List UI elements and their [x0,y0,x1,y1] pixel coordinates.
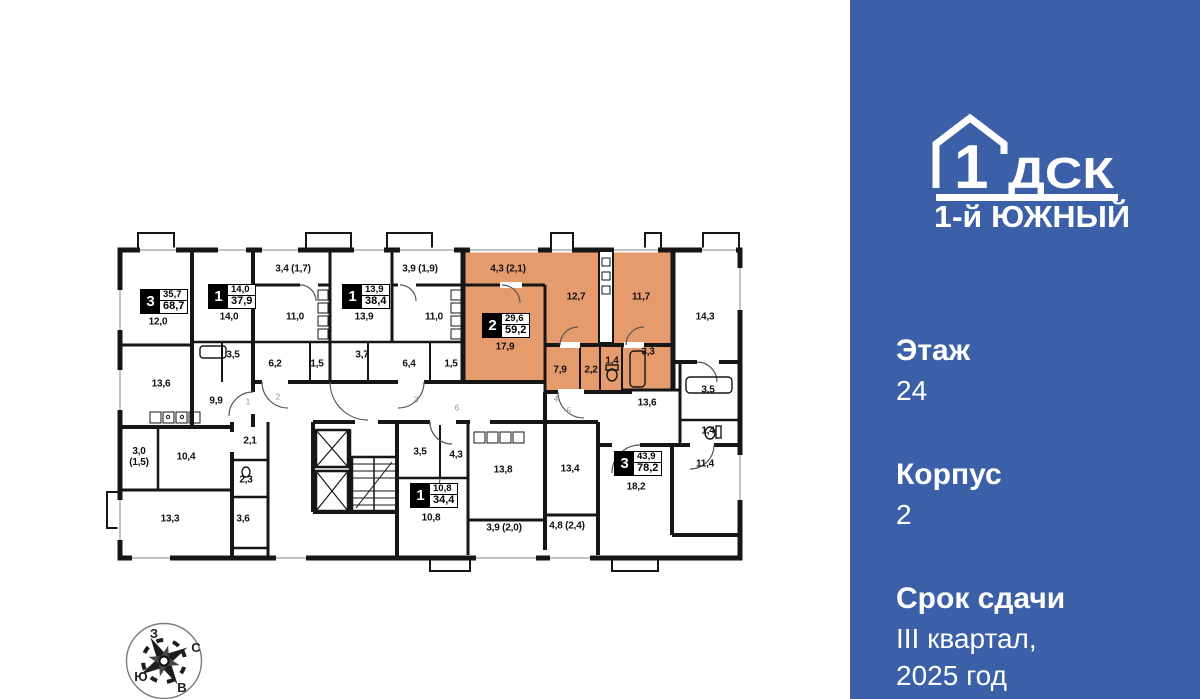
elevator-shafts [316,430,348,511]
compass-letter-north: С [191,640,201,655]
staircase [352,457,397,511]
room-area-label: 1,5 [444,359,457,370]
room-area-label: 10,8 [422,513,441,524]
room-area-label: 3,0 (1,5) [129,446,149,468]
room-area-label: 2,3 [239,475,252,486]
room-area-label: 9,9 [209,396,222,407]
room-area-label: 1,4 [605,356,618,367]
room-area-label: 3,7 [355,350,368,361]
room-area-label: 6,2 [268,359,281,370]
room-area-label: 2,2 [584,365,597,376]
room-area-label: 3,9 (2,0) [486,523,521,534]
unit-number: 2 [276,393,280,402]
rooms-count: 1 [411,484,430,507]
logo-letters: ДСК [1008,149,1114,198]
floor-plan-drawing [0,0,850,699]
unit-number: 1 [246,398,250,407]
room-area-label: 13,3 [161,514,180,525]
room-area-label: 4,3 (2,1) [490,264,525,275]
info-panel: 1 ДСК 1-й ЮЖНЫЙ Этаж 24 Корпус 2 Срок сд… [850,0,1200,699]
total-area: 34,4 [430,495,457,506]
building-value: 2 [896,496,1002,533]
room-area-label: 1,4 [701,426,714,437]
rooms-count: 1 [343,285,362,308]
room-area-label: 3,9 (1,9) [402,264,437,275]
room-area-label: 17,9 [496,342,515,353]
unit-number: 5 [567,407,571,416]
room-area-label: 3,5 [226,350,239,361]
room-area-label: 3,4 (1,7) [275,264,310,275]
logo-number: 1 [954,133,988,202]
apartment-badge-1k[interactable]: 114,037,9 [208,284,256,309]
room-area-label: 13,6 [638,398,657,409]
deadline-value: III квартал, 2025 год [896,620,1065,694]
room-area-label: 18,2 [627,482,646,493]
deadline-label: Срок сдачи [896,582,1065,616]
floor-field: Этаж 24 [896,334,970,409]
room-area-label: 6,4 [402,359,415,370]
floor-value: 24 [896,372,970,409]
room-area-label: 3,5 [701,385,714,396]
compass-letter-west: З [150,626,158,641]
unit-number: 4 [554,395,558,404]
room-area-label: 10,4 [177,452,196,463]
apartment-badge-3k[interactable]: 343,978,2 [614,451,662,476]
apartment-badge-1k[interactable]: 113,938,4 [342,284,390,309]
total-area: 37,9 [228,296,255,307]
room-area-label: 4,3 [449,450,462,461]
room-area-label: 7,9 [553,365,566,376]
room-area-label: 11,7 [632,292,650,303]
room-area-label: 13,4 [561,464,580,475]
room-area-label: 13,6 [152,379,171,390]
deadline-field: Срок сдачи III квартал, 2025 год [896,582,1065,694]
room-area-label: 3,6 [236,514,249,525]
apartment-badge-2k-selected[interactable]: 229,659,2 [482,313,530,338]
apartment-badge-3k[interactable]: 335,768,7 [140,289,188,314]
unit-number: 3 [414,396,418,405]
floor-label: Этаж [896,334,970,368]
room-area-label: 11,0 [286,312,304,323]
unit-number: 6 [455,404,459,413]
total-area: 59,2 [502,325,529,336]
vent-shaft [599,251,613,343]
room-area-label: 13,8 [494,465,513,476]
room-area-label: 14,3 [696,312,715,323]
room-area-label: 14,0 [220,312,239,323]
room-area-label: 11,4 [696,459,714,470]
compass-letter-east: В [177,680,186,695]
developer-logo: 1 ДСК 1-й ЮЖНЫЙ [928,110,1140,232]
rooms-count: 2 [483,314,502,337]
total-area: 68,7 [160,301,187,312]
floor-plan: 12,013,69,914,03,4 (1,7)11,03,56,21,513,… [0,0,850,699]
apartment-badge-1k[interactable]: 110,834,4 [410,483,458,508]
building-label: Корпус [896,458,1002,492]
compass-letter-south: Ю [134,669,147,684]
room-area-label: 2,1 [243,436,256,447]
room-area-label: 3,3 [641,347,654,358]
project-name: 1-й ЮЖНЫЙ [934,198,1130,232]
rooms-count: 3 [615,452,634,475]
total-area: 78,2 [634,463,661,474]
rooms-count: 1 [209,285,228,308]
room-area-label: 12,0 [149,317,168,328]
rooms-count: 3 [141,290,160,313]
room-area-label: 13,9 [355,312,374,323]
room-area-label: 4,8 (2,4) [549,521,584,532]
total-area: 38,4 [362,296,389,307]
screenshot-root: 12,013,69,914,03,4 (1,7)11,03,56,21,513,… [0,0,1200,699]
room-area-label: 12,7 [567,292,586,303]
room-area-label: 1,5 [310,359,323,370]
compass-rose: З С Ю В [118,610,214,699]
room-area-label: 3,5 [413,447,426,458]
room-area-label: 11,0 [425,312,443,323]
building-field: Корпус 2 [896,458,1002,533]
